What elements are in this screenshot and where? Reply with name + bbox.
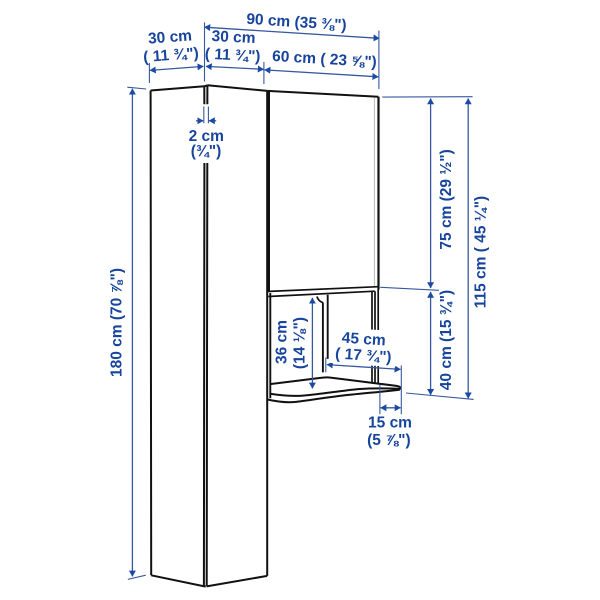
svg-text:30 cm: 30 cm	[211, 28, 256, 47]
svg-text:115 cm ( 45 ¼"): 115 cm ( 45 ¼")	[473, 196, 490, 308]
svg-text:30 cm: 30 cm	[147, 27, 192, 47]
svg-text:36 cm: 36 cm	[273, 320, 290, 364]
svg-text:180 cm (70 ⅞"): 180 cm (70 ⅞")	[109, 268, 126, 377]
svg-text:15 cm: 15 cm	[368, 414, 412, 431]
svg-text:(5 ⅞"): (5 ⅞")	[367, 432, 411, 449]
svg-text:(¾"): (¾")	[191, 143, 222, 160]
svg-text:( 11 ¾"): ( 11 ¾")	[204, 46, 260, 66]
svg-text:(14 ⅛"): (14 ⅛")	[292, 317, 309, 369]
svg-text:75 cm (29 ½"): 75 cm (29 ½")	[438, 149, 455, 249]
svg-text:40 cm (15 ¾"): 40 cm (15 ¾")	[438, 290, 455, 390]
